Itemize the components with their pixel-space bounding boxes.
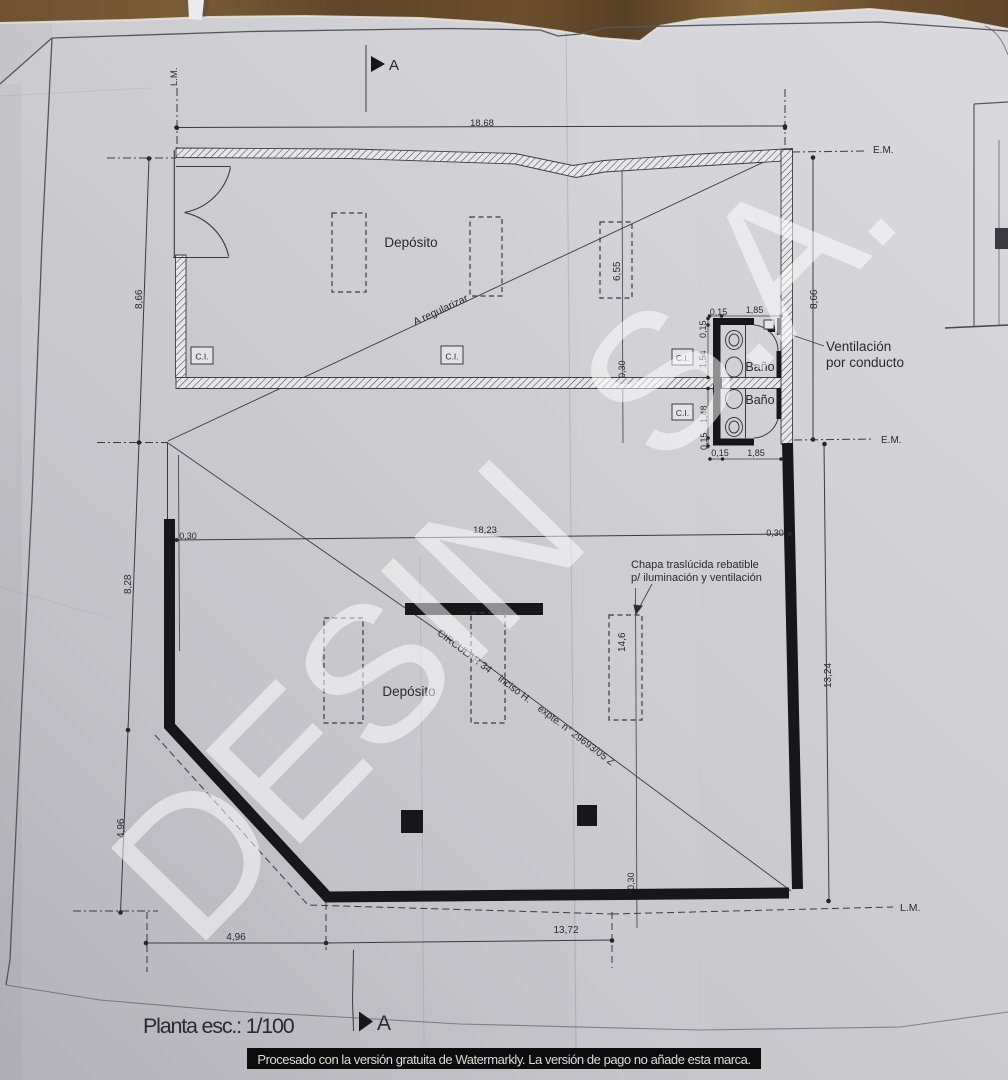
svg-text:por conducto: por conducto — [826, 355, 904, 370]
svg-text:L.M.: L.M. — [900, 902, 920, 914]
svg-text:13,24: 13,24 — [823, 663, 834, 688]
svg-text:14,6: 14,6 — [617, 632, 628, 652]
svg-text:8,66: 8,66 — [134, 289, 145, 309]
svg-text:Procesado con la versión gratu: Procesado con la versión gratuita de Wat… — [257, 1052, 750, 1067]
svg-text:13,72: 13,72 — [553, 925, 578, 936]
svg-text:0,30: 0,30 — [626, 872, 636, 890]
svg-text:A: A — [377, 1012, 391, 1035]
svg-text:p/ iluminación y ventilación: p/ iluminación y ventilación — [631, 572, 762, 584]
svg-text:0,30: 0,30 — [179, 531, 197, 541]
svg-text:8,28: 8,28 — [123, 574, 134, 594]
svg-text:L.M.: L.M. — [169, 68, 180, 86]
svg-text:A: A — [389, 57, 399, 74]
svg-text:E.M.: E.M. — [873, 145, 894, 156]
svg-text:18,68: 18,68 — [470, 118, 494, 129]
svg-text:C.I.: C.I. — [445, 352, 458, 362]
svg-text:Planta esc.: 1/100: Planta esc.: 1/100 — [143, 1014, 295, 1038]
svg-text:1,85: 1,85 — [747, 448, 765, 458]
svg-text:E.M.: E.M. — [881, 435, 902, 446]
svg-text:Chapa traslúcida rebatible: Chapa traslúcida rebatible — [631, 559, 759, 571]
svg-text:C.I.: C.I. — [195, 352, 208, 362]
svg-text:0,30: 0,30 — [766, 528, 784, 538]
svg-text:Depósito: Depósito — [384, 235, 437, 250]
